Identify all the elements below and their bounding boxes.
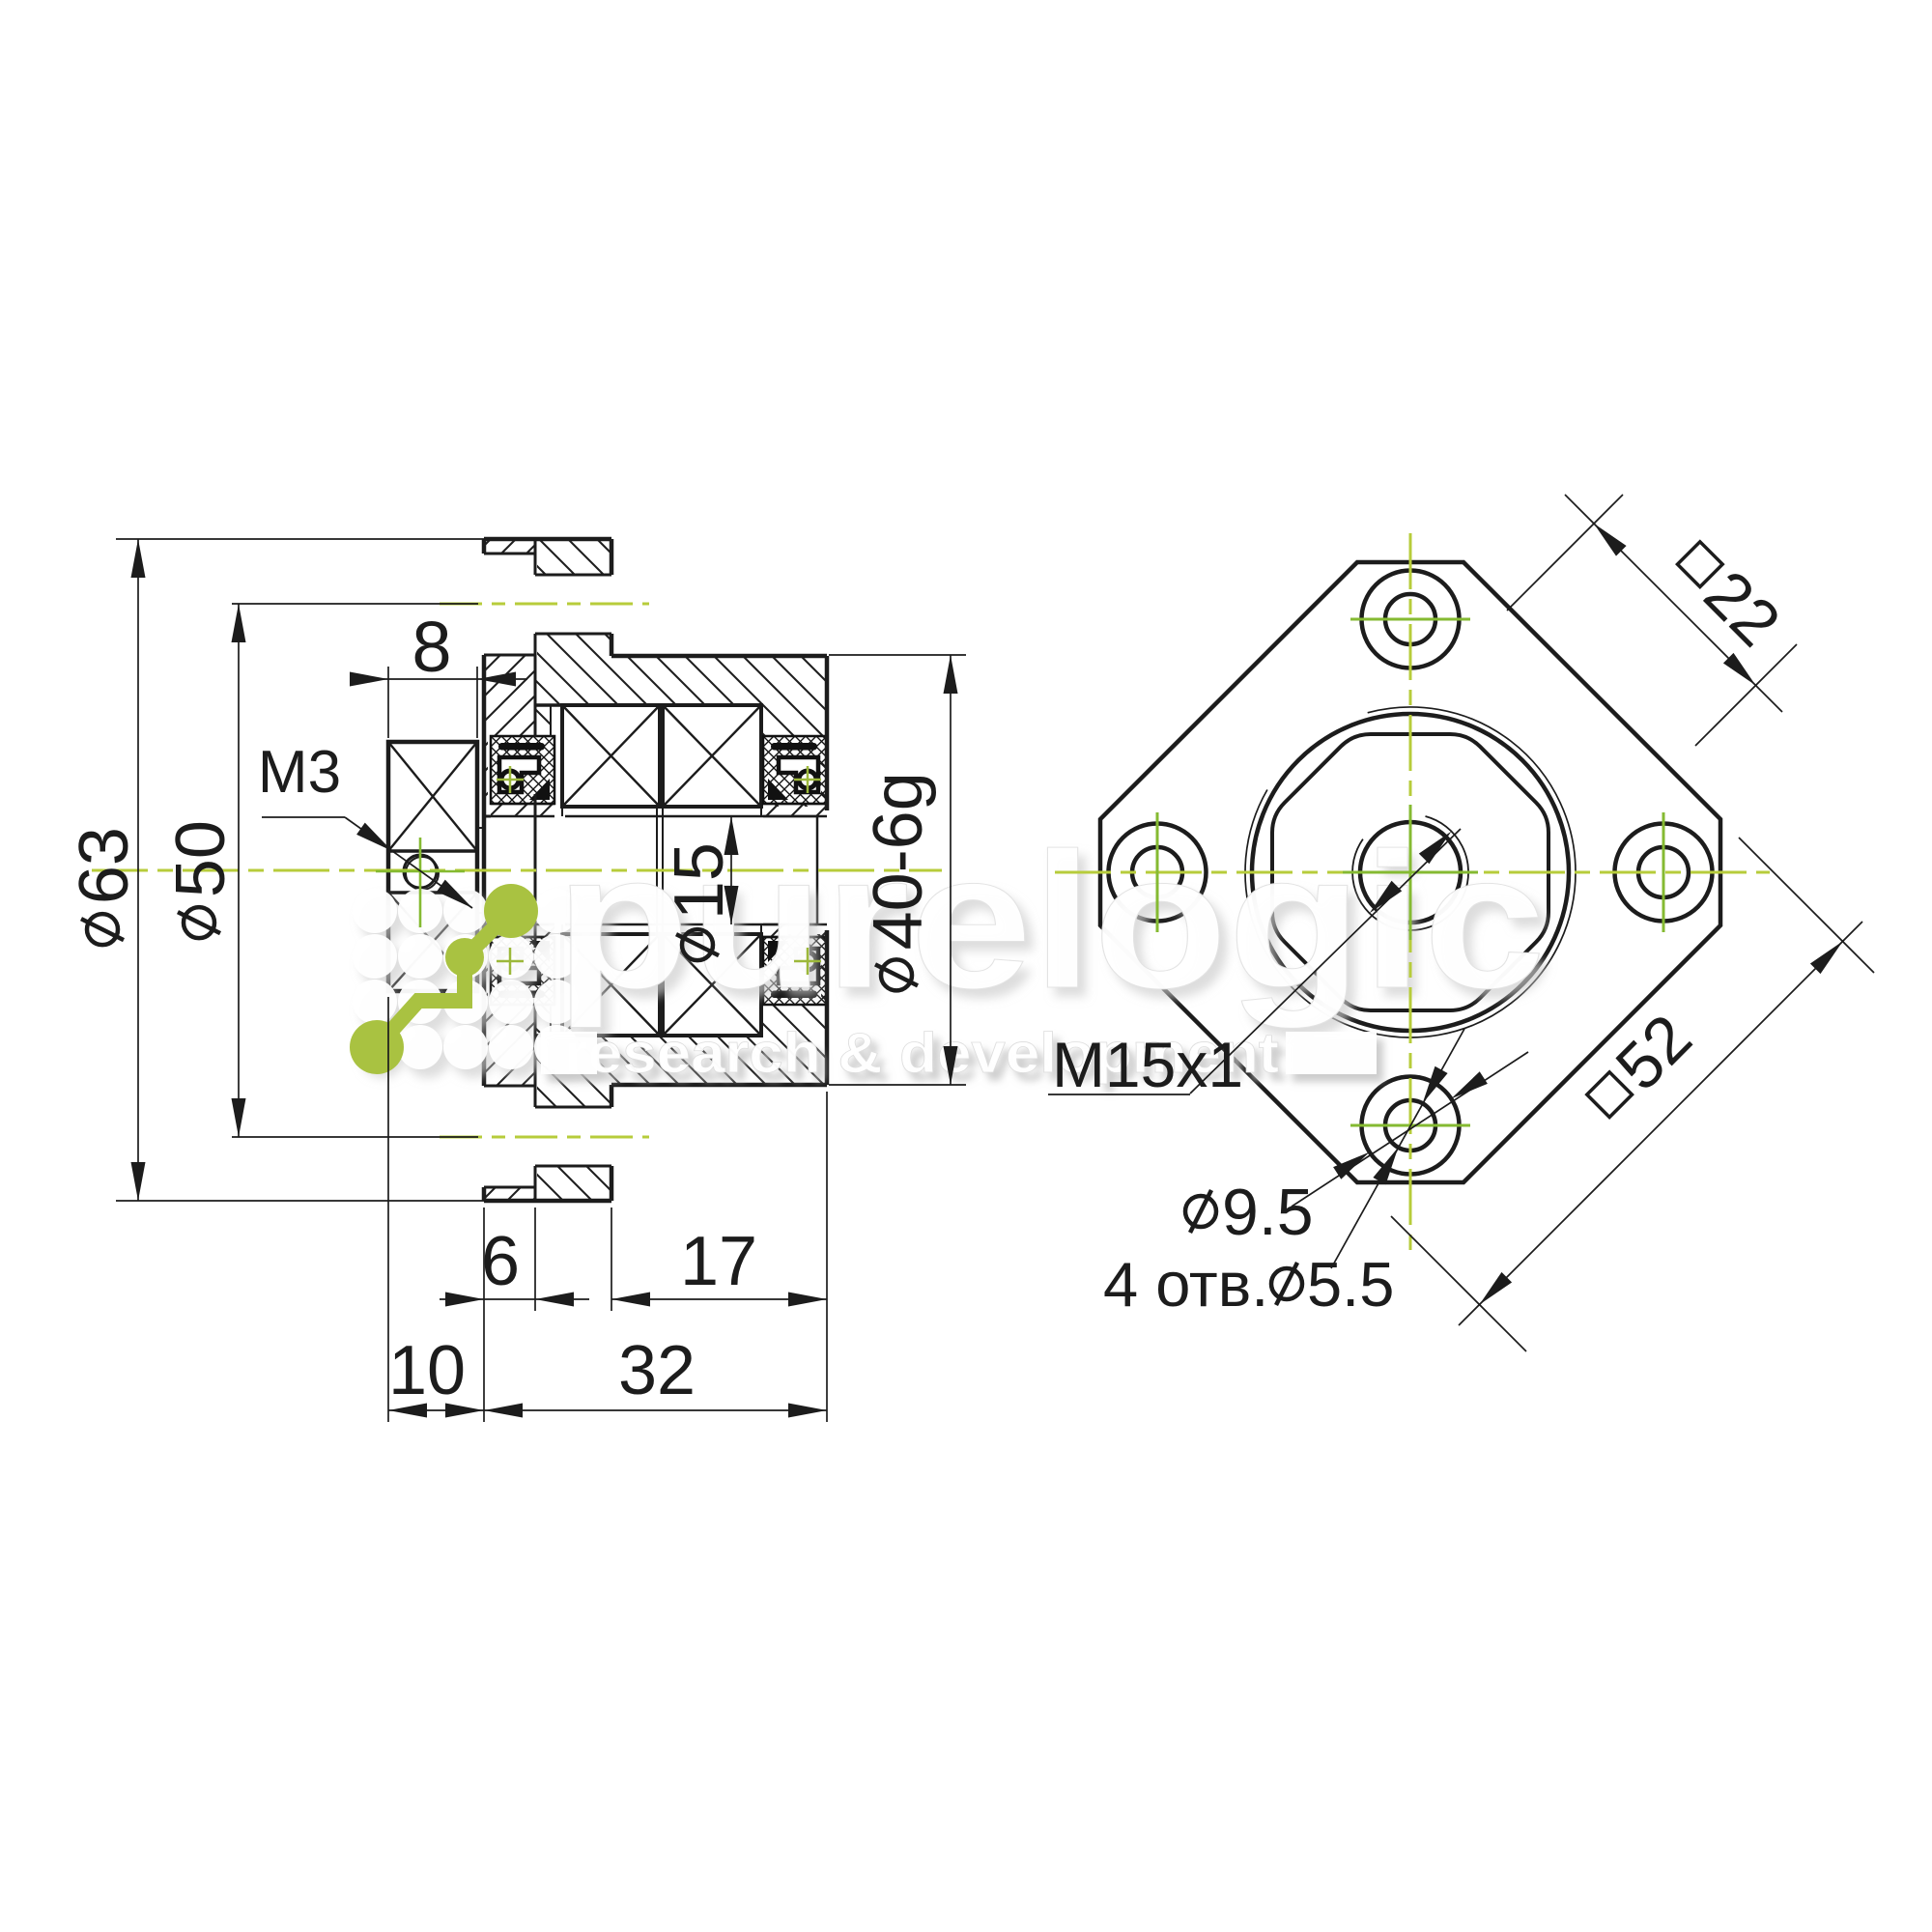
svg-text:40-6g: 40-6g — [860, 772, 937, 950]
svg-text:M15x1: M15x1 — [1052, 1029, 1243, 1100]
svg-text:17: 17 — [680, 1223, 757, 1300]
svg-text:9.5: 9.5 — [1222, 1176, 1314, 1249]
svg-text:10: 10 — [388, 1332, 466, 1409]
svg-text:M3: M3 — [258, 739, 341, 806]
svg-text:4 отв.: 4 отв. — [1103, 1249, 1268, 1320]
svg-text:32: 32 — [618, 1332, 696, 1409]
svg-text:8: 8 — [412, 607, 451, 687]
svg-text:15: 15 — [661, 842, 738, 920]
svg-text:5.5: 5.5 — [1307, 1249, 1394, 1320]
svg-text:63: 63 — [66, 827, 143, 904]
svg-text:6: 6 — [481, 1223, 520, 1300]
svg-text:50: 50 — [162, 820, 240, 897]
